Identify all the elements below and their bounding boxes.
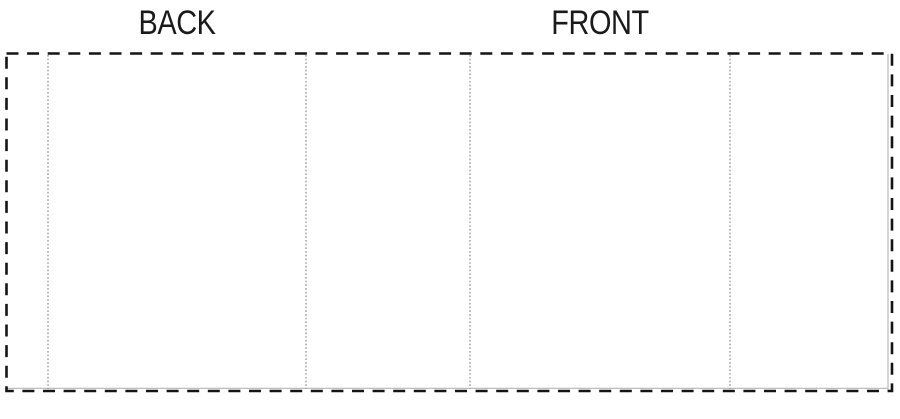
wrapper-template-canvas: BACK FRONT	[0, 0, 900, 419]
template-diagram	[0, 0, 900, 419]
cut-line-border	[7, 54, 893, 392]
